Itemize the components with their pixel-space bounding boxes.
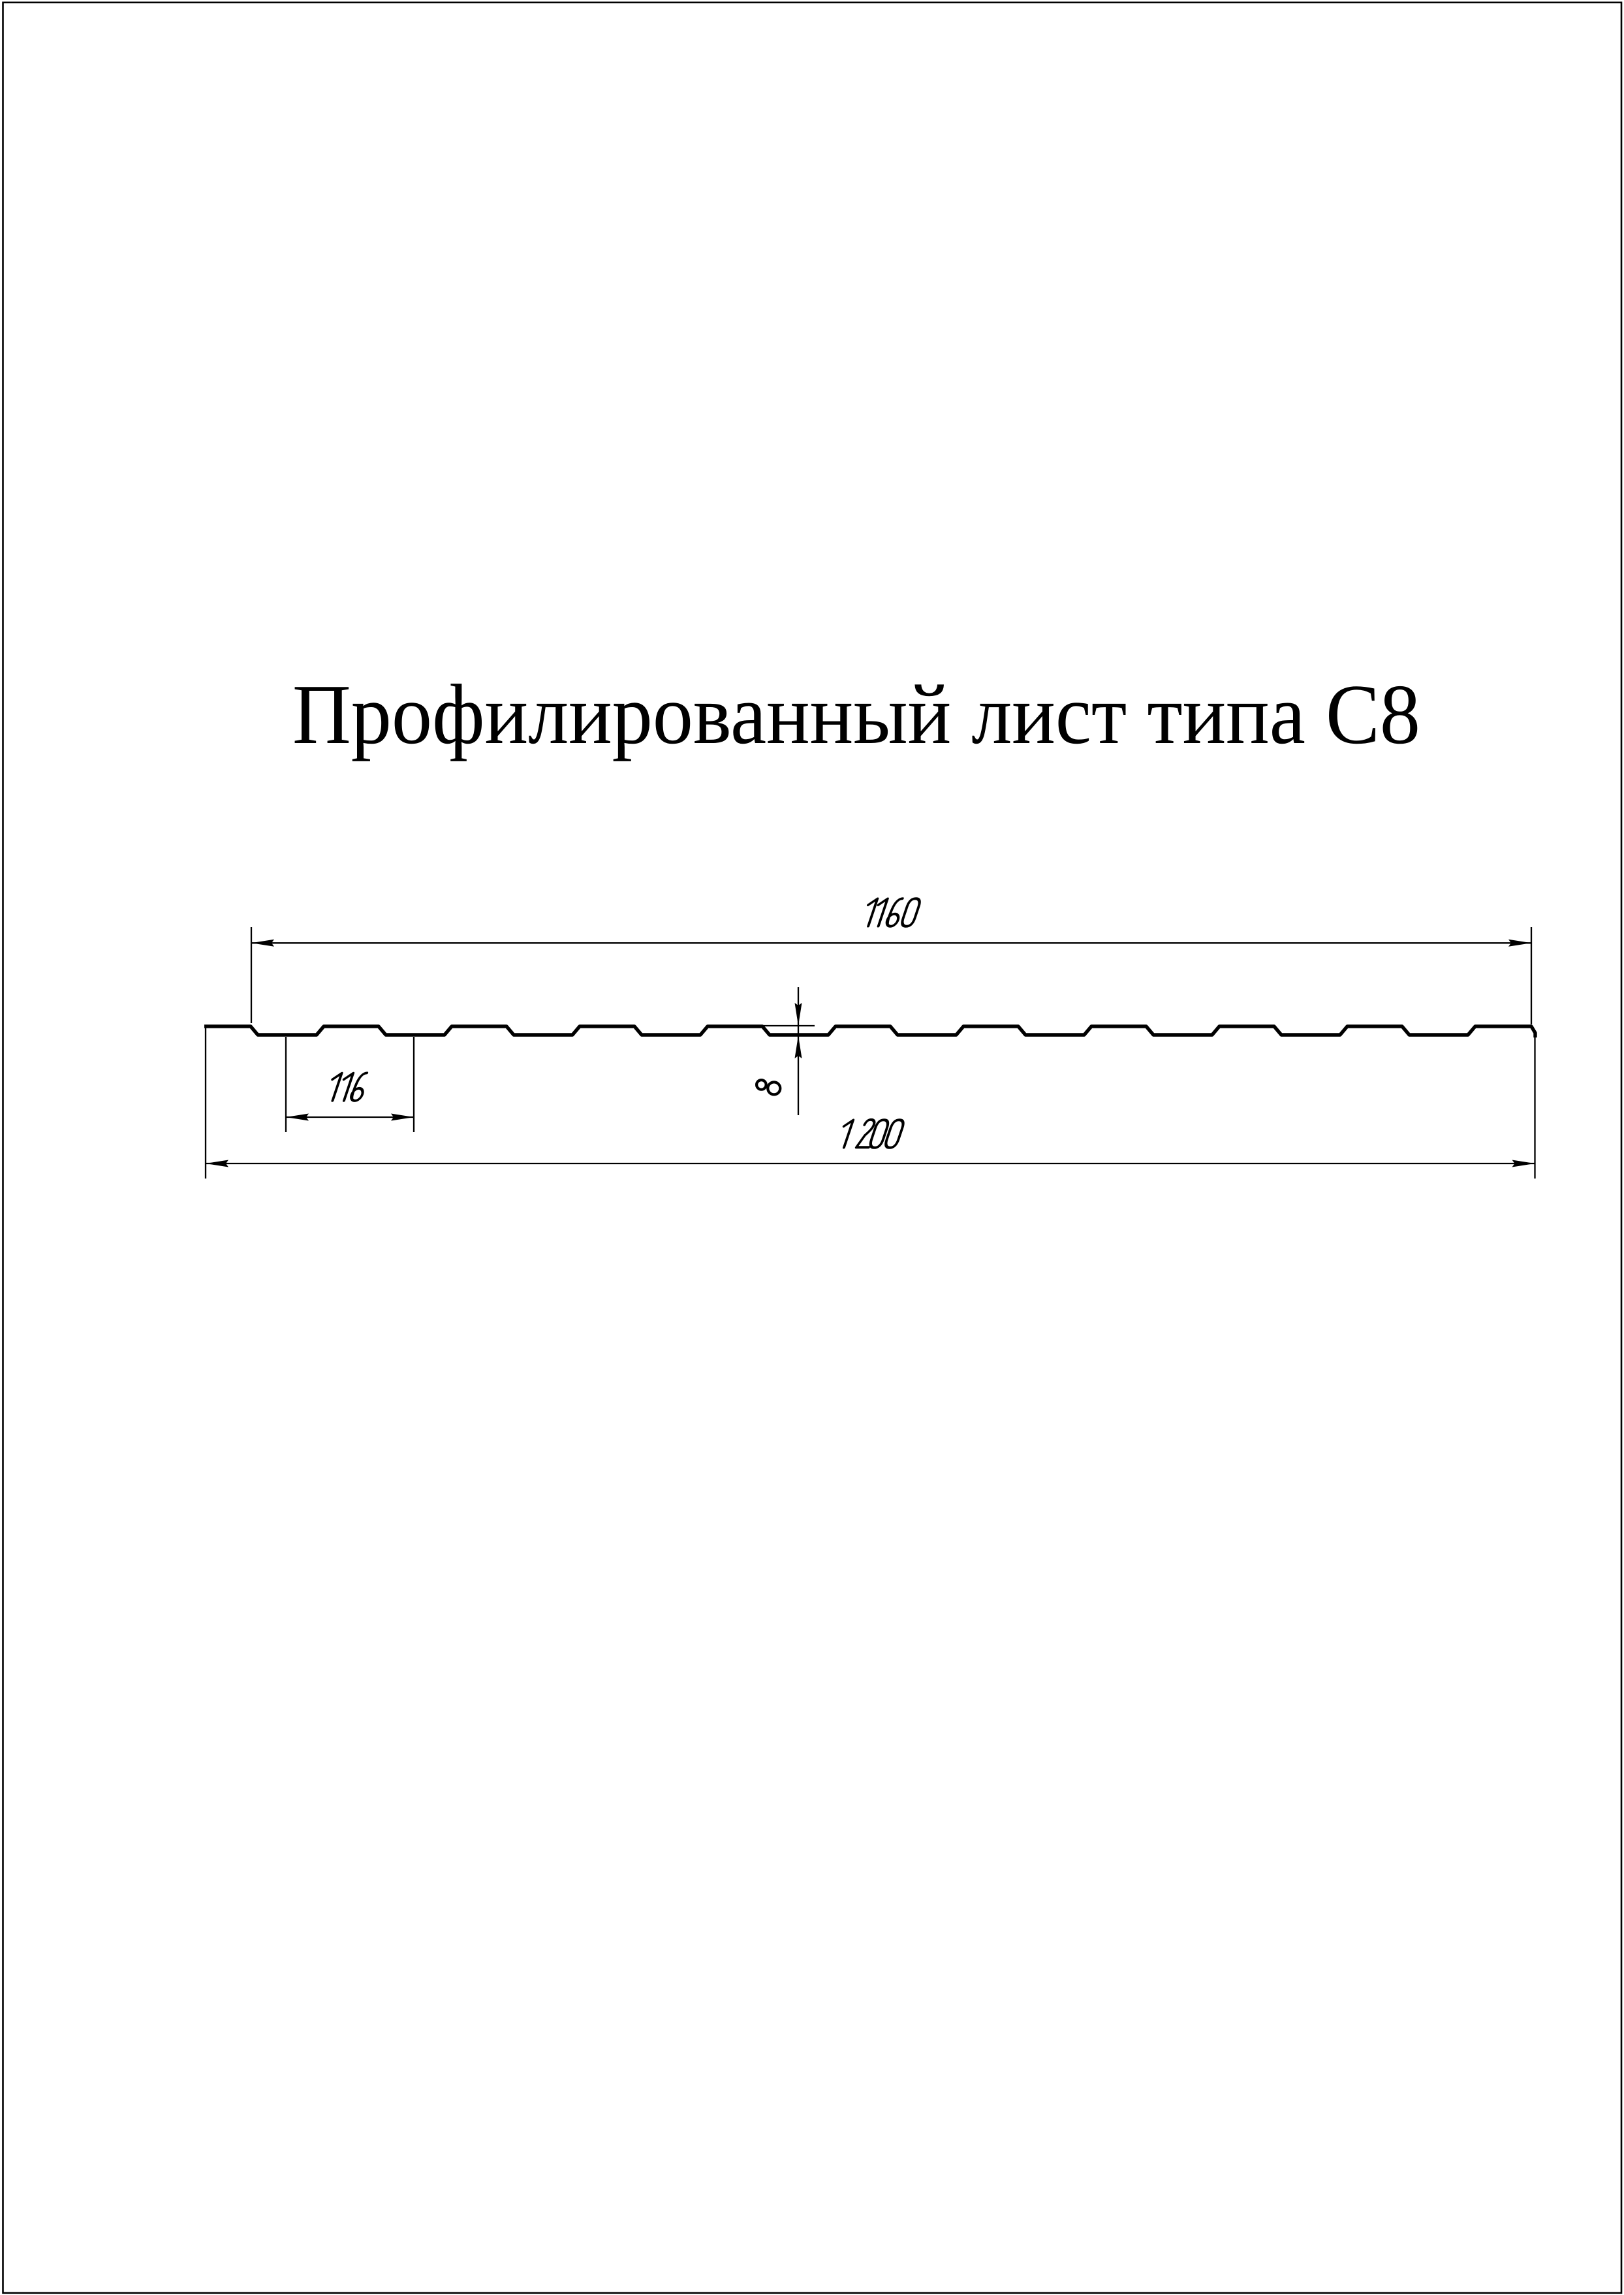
svg-text:Профилированный лист типа С8: Профилированный лист типа С8 — [292, 667, 1420, 762]
